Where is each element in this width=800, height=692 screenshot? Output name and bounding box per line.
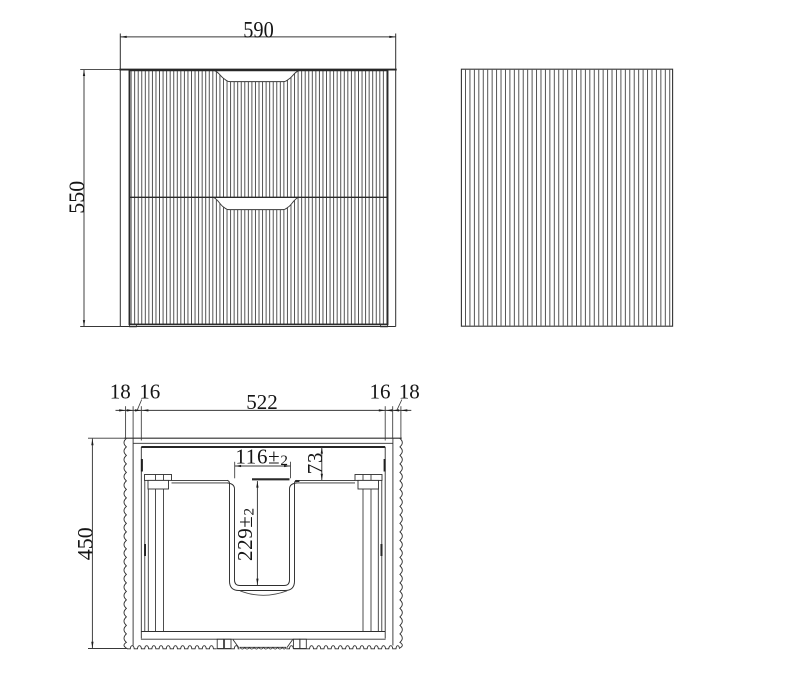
svg-text:550: 550 <box>64 181 89 214</box>
svg-text:73: 73 <box>303 452 327 474</box>
svg-text:16: 16 <box>139 380 160 404</box>
svg-text:522: 522 <box>246 390 278 414</box>
svg-text:16: 16 <box>370 380 391 404</box>
svg-text:590: 590 <box>243 18 274 43</box>
svg-text:18: 18 <box>110 380 131 404</box>
svg-text:450: 450 <box>72 527 97 560</box>
